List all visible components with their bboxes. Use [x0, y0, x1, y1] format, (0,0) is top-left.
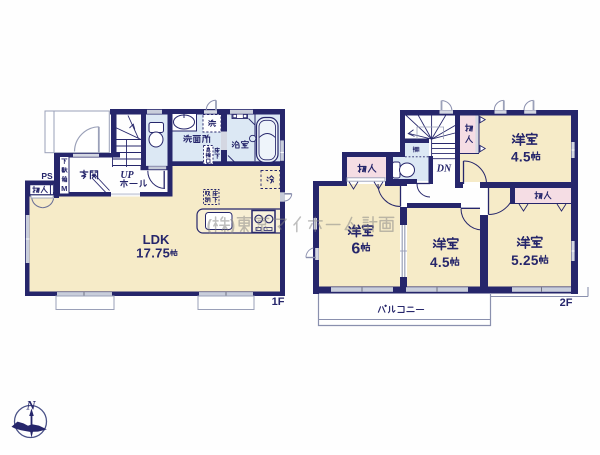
svg-text:(: ( — [207, 217, 213, 234]
svg-text:DN: DN — [436, 164, 452, 175]
svg-text:PS: PS — [41, 171, 53, 181]
svg-text:5: 5 — [442, 255, 450, 270]
svg-text:1: 1 — [136, 246, 143, 261]
svg-text:M: M — [61, 184, 67, 193]
svg-text:2: 2 — [523, 253, 531, 268]
svg-text:): ) — [230, 217, 235, 234]
svg-text:7: 7 — [155, 246, 162, 261]
svg-text:5: 5 — [531, 253, 539, 268]
svg-text:5: 5 — [163, 246, 170, 261]
svg-text:5: 5 — [523, 149, 531, 164]
svg-text:2F: 2F — [560, 297, 573, 309]
svg-text:1F: 1F — [272, 296, 285, 308]
svg-text:7: 7 — [144, 246, 151, 261]
svg-text:UP: UP — [120, 170, 134, 181]
svg-text:6: 6 — [351, 240, 360, 257]
svg-text:4: 4 — [511, 149, 519, 164]
